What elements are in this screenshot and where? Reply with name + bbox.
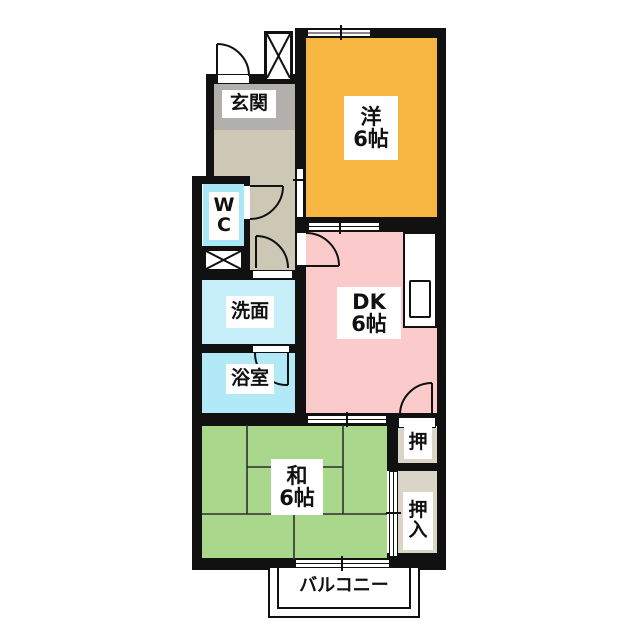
kitchen-sink (409, 280, 431, 318)
wall-left-outer (192, 176, 202, 570)
closet-upper-label: 押 (404, 427, 432, 459)
hallway-lower (250, 176, 295, 270)
japanese-room-label: 和 6帖 (271, 459, 323, 515)
bathroom-label: 浴室 (226, 364, 274, 394)
dk-door-opening (297, 232, 306, 266)
wc-door-opening (244, 186, 250, 219)
bathroom-threshold (252, 345, 290, 353)
dk-japanese-sliding-door (307, 415, 387, 424)
wall-closet-left (387, 413, 398, 471)
washroom-threshold (252, 270, 293, 279)
pipe-space-top-inner (267, 34, 290, 79)
closet-lower-label: 押 入 (403, 492, 433, 550)
hallway-upper (214, 130, 295, 176)
balcony-sliding-door (295, 559, 390, 568)
wall-closet-divider (398, 463, 437, 471)
entrance-threshold (217, 74, 250, 84)
western-window (307, 29, 371, 37)
balcony-label: バルコニー (287, 574, 401, 599)
floor-plan: 玄関 洋 6帖 W C 洗面 浴室 DK 6帖 和 6帖 押 押 入 バルコニー (0, 0, 640, 640)
wall-right-outer (437, 28, 446, 568)
wall-left-upper (206, 74, 214, 184)
western-room-label: 洋 6帖 (344, 96, 398, 160)
genkan-label: 玄関 (222, 90, 276, 118)
dk-label: DK 6帖 (337, 287, 401, 339)
wc-label: W C (209, 192, 239, 240)
washroom-label: 洗面 (226, 296, 274, 328)
western-dk-sliding-door (308, 222, 380, 231)
entrance-door-arc (217, 44, 249, 76)
closet-fusuma-doors (389, 471, 398, 557)
pipe-space-wc-inner (206, 251, 241, 269)
hall-western-door-slot (296, 168, 304, 218)
